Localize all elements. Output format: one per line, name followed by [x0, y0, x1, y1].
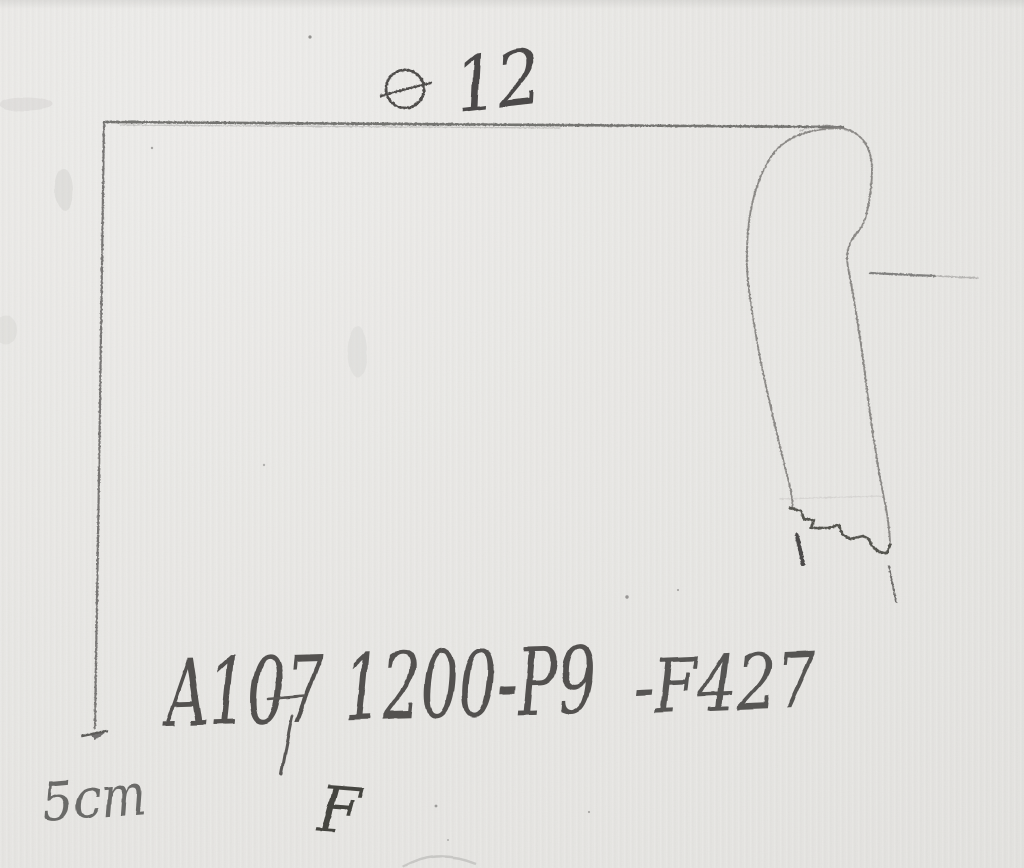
catalog-label: A107 1200-P9	[158, 627, 598, 748]
scanned-sketch-paper: 12 5cm A107 1200-P9 -F427 F	[0, 0, 1024, 868]
sketch-svg: 12 5cm A107 1200-P9 -F427 F	[0, 0, 1024, 868]
paper-grain-texture	[0, 0, 1024, 868]
bottom-letter-label: F	[314, 773, 367, 850]
scale-label: 5cm	[40, 762, 149, 836]
find-label: -F427	[631, 635, 819, 732]
diameter-value-label: 12	[449, 31, 545, 130]
